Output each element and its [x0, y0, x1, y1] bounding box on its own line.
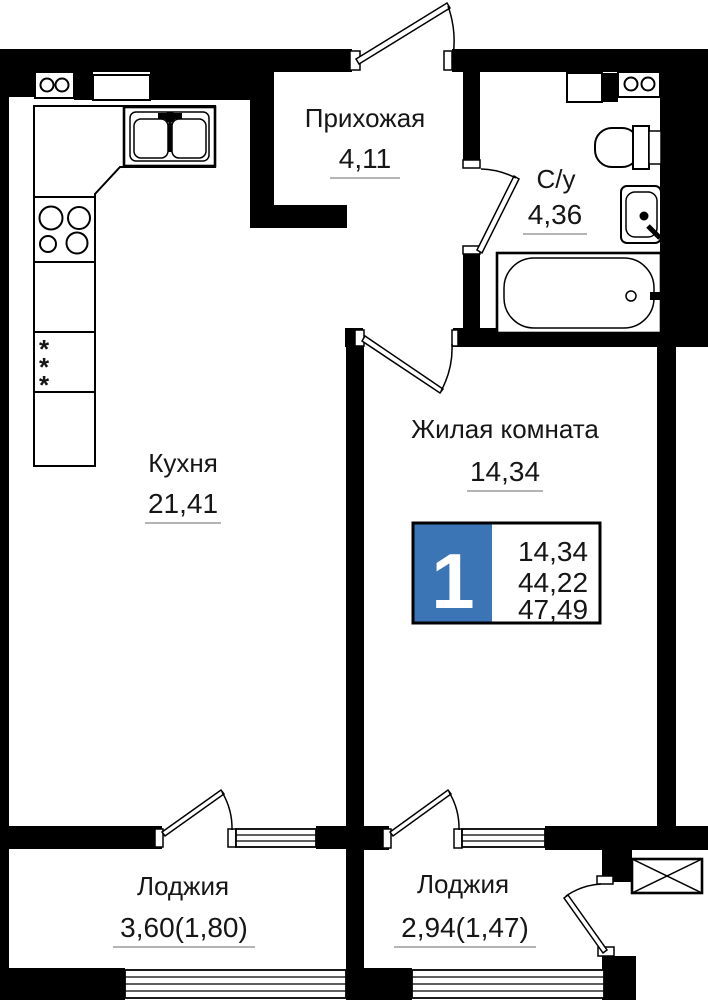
door-jamb [355, 330, 364, 346]
floor-plan-svg: * * * Прихожая 4,11 С/у 4,36 [0, 0, 708, 1000]
wall-segment [545, 826, 708, 850]
kitchen-cabinet-icon [34, 392, 95, 466]
bathtub-icon [497, 253, 662, 333]
wall-segment [250, 205, 347, 228]
room-area: 4,11 [339, 143, 391, 174]
loggia-right-glazing [412, 970, 604, 998]
kitchen-cabinet-icon [34, 262, 95, 332]
door-jamb [454, 829, 462, 848]
bathroom-door [463, 160, 519, 254]
door-swing-icon [222, 792, 232, 830]
wall-segment [602, 956, 636, 1000]
door-leaf [564, 895, 607, 953]
wall-segment [660, 49, 708, 347]
loggia-right-door [383, 790, 462, 848]
badge-living-area: 14,34 [518, 536, 588, 567]
wall-segment [346, 333, 364, 1000]
door-swing-icon [441, 344, 452, 391]
ac-basket-icon [632, 859, 702, 893]
living-room-window [462, 829, 545, 847]
room-name: Кухня [148, 448, 218, 478]
room-area: 21,41 [148, 488, 218, 519]
room-area: 14,34 [470, 456, 540, 487]
room-name: С/у [537, 164, 576, 194]
room-label-bathroom: С/у 4,36 [523, 164, 587, 234]
washbasin-icon [621, 186, 661, 243]
room-label-living: Жилая комната 14,34 [411, 414, 599, 491]
room-area: 4,36 [528, 199, 583, 230]
room-label-kitchen: Кухня 21,41 [145, 448, 221, 523]
neighbor-loggia-door [564, 876, 614, 956]
wall-segment [0, 49, 352, 72]
door-swing-icon [481, 169, 516, 178]
room-label-hallway: Прихожая 4,11 [305, 103, 425, 178]
door-leaf [390, 790, 451, 836]
wall-segment [364, 968, 412, 1000]
wall-segment [602, 73, 618, 102]
wall-segment [316, 826, 346, 849]
wall-segment [0, 49, 9, 1000]
wall-segment [150, 72, 252, 100]
door-leaf [477, 176, 519, 253]
wall-segment [9, 826, 162, 849]
room-name: Лоджия [137, 871, 229, 901]
window-icon [236, 829, 316, 847]
room-name: Лоджия [417, 869, 509, 899]
window-icon [462, 829, 545, 847]
door-jamb [597, 876, 613, 884]
room-area: 3,60(1,80) [120, 912, 248, 943]
apartment-badge: 1 14,34 44,22 47,49 [413, 523, 600, 625]
kitchen-sink-icon [124, 107, 215, 166]
wall-segment [9, 968, 125, 1000]
door-swing-icon [566, 884, 601, 896]
room-area: 2,94(1,47) [401, 912, 529, 943]
wall-segment [657, 330, 676, 850]
stove-icon [34, 197, 95, 262]
floor-plan: * * * Прихожая 4,11 С/у 4,36 [0, 0, 708, 1000]
vent-shaft-icon [35, 72, 150, 100]
wall-segment [250, 49, 274, 228]
room-name: Прихожая [305, 103, 425, 133]
entrance-door [350, 3, 454, 70]
loggia-left-glazing [125, 970, 346, 998]
door-leaf [362, 336, 443, 393]
kitchen-window [236, 829, 316, 847]
badge-rooms-count: 1 [431, 537, 474, 625]
door-jamb [228, 829, 236, 847]
badge-total-area: 47,49 [518, 594, 588, 625]
loggia-left-door [155, 790, 236, 847]
wall-segment [74, 72, 93, 100]
door-swing-icon [449, 792, 459, 830]
toilet-icon [595, 126, 661, 169]
door-jamb [452, 330, 458, 346]
door-jamb [463, 160, 480, 168]
room-label-loggia-right: Лоджия 2,94(1,47) [394, 869, 536, 947]
wall-segment [463, 72, 480, 167]
fridge-icon: * * * [34, 332, 95, 400]
wall-segment [9, 72, 35, 97]
walls [0, 49, 708, 1000]
room-name: Жилая комната [411, 414, 599, 444]
door-jamb [444, 51, 452, 70]
living-room-door [355, 330, 458, 393]
door-leaf [162, 790, 224, 836]
room-label-loggia-left: Лоджия 3,60(1,80) [113, 871, 255, 947]
door-leaf [356, 3, 450, 64]
